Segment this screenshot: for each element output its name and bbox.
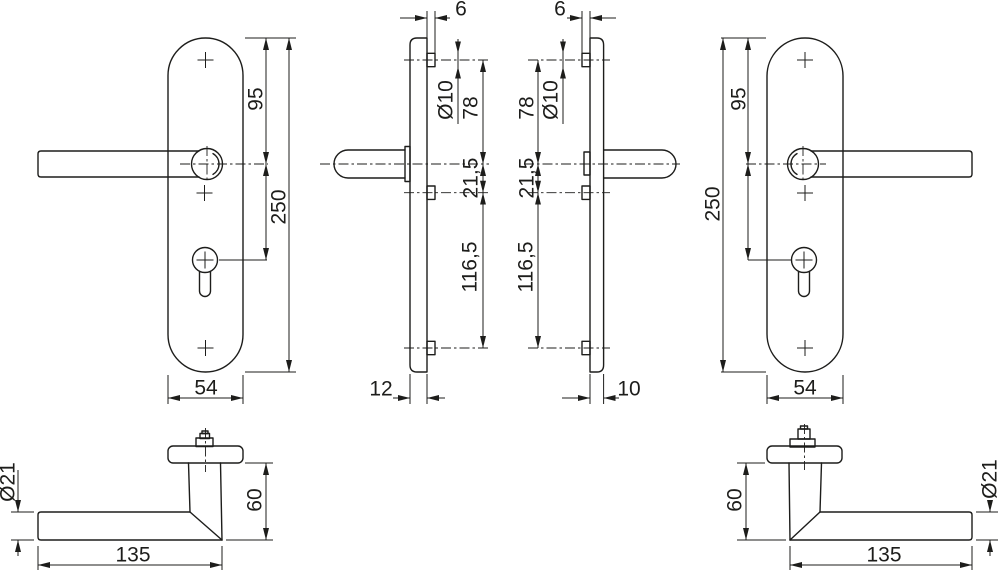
- view-lever-handle-right: 60 135 Ø21: [724, 424, 1000, 570]
- backplate-outline: [168, 38, 243, 372]
- dim-label-116-5: 116,5: [459, 242, 482, 293]
- miter-line: [190, 512, 222, 540]
- dim-label-54: 54: [194, 377, 218, 400]
- backplate-outline: [767, 38, 843, 372]
- miter-line: [790, 512, 820, 540]
- technical-drawing-page: 95 250 54 6 Ø10 78 21,5: [0, 0, 1000, 571]
- dim-label-54: 54: [793, 377, 817, 400]
- lever-grip-outline: [790, 512, 972, 540]
- screw-center-marks: [797, 52, 813, 356]
- view-backplate-front-left: 95 250 54: [38, 38, 296, 404]
- cylinder-keyway: [200, 271, 211, 296]
- dim-label-95: 95: [728, 87, 751, 110]
- lever-grip-front: [811, 151, 972, 177]
- dim-label-d21: Ø21: [979, 459, 1000, 499]
- dim-label-116-5: 116,5: [515, 242, 538, 293]
- dim-label-95: 95: [245, 87, 268, 110]
- view-backplate-profile-right: 6 Ø10 78 21,5 116,5 10: [515, 0, 681, 404]
- dimensions-profile-right: 6 Ø10 78 21,5 116,5 10: [515, 0, 641, 404]
- neck-edge: [189, 463, 191, 512]
- dim-label-d10: Ø10: [435, 80, 458, 120]
- dimensions-lever-right: 60 135 Ø21: [724, 459, 1000, 570]
- dim-label-d10: Ø10: [540, 80, 563, 120]
- dimensions-front-left: 95 250 54: [168, 38, 296, 404]
- dim-label-135: 135: [115, 544, 150, 567]
- dim-label-250: 250: [268, 189, 291, 224]
- dimensions-lever-left: 60 135 Ø21: [0, 462, 273, 570]
- spindle-base: [196, 438, 213, 447]
- dim-label-21-5: 21,5: [460, 158, 483, 199]
- view-backplate-front-right: 95 250 54: [702, 38, 973, 404]
- spindle-screw: [202, 431, 208, 434]
- neck-edge: [789, 463, 790, 540]
- dim-label-6: 6: [455, 0, 467, 21]
- cylinder-center-mark: [796, 252, 813, 269]
- view-lever-handle-left: 60 135 Ø21: [0, 428, 273, 570]
- dim-label-6: 6: [554, 0, 566, 21]
- lever-grip-front: [38, 151, 199, 177]
- backplate-profile-outline: [410, 38, 427, 372]
- cylinder-keyway: [799, 271, 810, 296]
- view-backplate-profile-left: 6 Ø10 78 21,5 116,5 12: [320, 0, 489, 404]
- dim-label-60: 60: [244, 488, 267, 511]
- cylinder-center-mark: [197, 252, 214, 269]
- dim-label-10: 10: [617, 378, 640, 401]
- dim-label-78: 78: [460, 96, 483, 119]
- door-handle-dimension-drawing: 95 250 54 6 Ø10 78 21,5: [0, 0, 1000, 571]
- spindle-flange: [584, 152, 590, 175]
- dim-label-21-5: 21,5: [516, 158, 539, 199]
- neck-edge: [221, 463, 223, 540]
- spindle-screw: [801, 426, 808, 429]
- dim-label-78: 78: [516, 96, 539, 119]
- backplate-profile-outline: [590, 38, 604, 372]
- dim-label-60: 60: [724, 488, 747, 511]
- neck-edge: [820, 463, 822, 512]
- dimensions-profile-left: 6 Ø10 78 21,5 116,5 12: [369, 0, 483, 404]
- dimensions-front-right: 95 250 54: [702, 38, 844, 404]
- dim-label-d21: Ø21: [0, 462, 20, 502]
- dim-label-250: 250: [702, 186, 725, 221]
- dim-label-135: 135: [866, 544, 901, 567]
- screw-center-marks: [197, 52, 214, 356]
- dim-label-12: 12: [369, 378, 392, 401]
- spindle-square: [798, 429, 810, 439]
